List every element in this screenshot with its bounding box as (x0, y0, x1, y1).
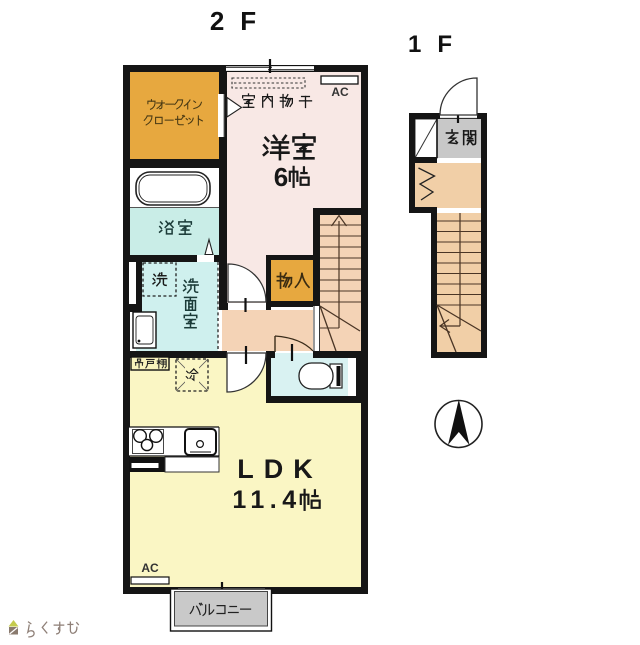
svg-text:AC: AC (331, 85, 349, 99)
svg-text:6: 6 (274, 162, 288, 192)
svg-text:AC: AC (141, 561, 159, 575)
svg-text:1F: 1F (408, 31, 468, 58)
svg-text:2F: 2F (210, 6, 272, 36)
svg-text:LDK: LDK (237, 454, 323, 484)
svg-text:11.4: 11.4 (232, 486, 301, 514)
